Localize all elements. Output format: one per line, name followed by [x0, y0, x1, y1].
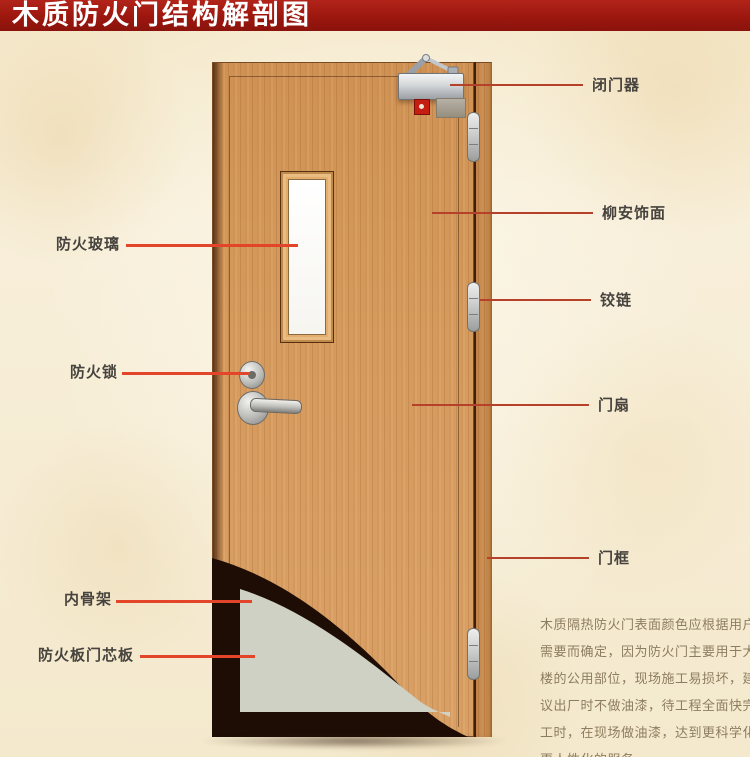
label-core-panel: 防火板门芯板	[18, 648, 134, 664]
door-cutaway	[212, 62, 476, 737]
description-line: 木质隔热防火门表面颜色应根据用户	[540, 611, 735, 638]
description-line: 更人性化的服务。	[540, 746, 735, 757]
description-line: 需要而确定，因为防火门主要用于大	[540, 638, 735, 665]
page-title: 木质防火门结构解剖图	[12, 0, 312, 31]
door-illustration	[212, 62, 492, 737]
label-door-closer: 闭门器	[592, 78, 640, 94]
leader-line-fire-glass	[126, 244, 298, 247]
leader-line-door-leaf	[412, 404, 589, 406]
door-floor-shadow	[202, 733, 507, 749]
leader-line-inner-skeleton	[116, 600, 252, 603]
page-title-banner: 木质防火门结构解剖图	[0, 0, 750, 31]
leader-line-lauan-veneer	[432, 212, 593, 214]
leader-line-fire-lock	[122, 372, 250, 375]
leader-line-core-panel	[140, 655, 255, 658]
label-fire-lock: 防火锁	[28, 365, 118, 381]
leader-line-door-closer	[450, 84, 583, 86]
label-door-leaf: 门扇	[598, 398, 630, 414]
label-inner-skeleton: 内骨架	[18, 592, 112, 608]
description-line: 楼的公用部位，现场施工易损坏，建	[540, 665, 735, 692]
description-text: 木质隔热防火门表面颜色应根据用户 需要而确定，因为防火门主要用于大 楼的公用部位…	[540, 611, 735, 757]
label-hinge: 铰链	[600, 293, 632, 309]
label-fire-glass: 防火玻璃	[28, 237, 120, 253]
label-lauan-veneer: 柳安饰面	[602, 206, 666, 222]
page-background: 木质防火门结构解剖图 防火玻璃 防	[0, 0, 750, 757]
core-panel-shape	[240, 589, 450, 717]
leader-line-door-frame	[487, 557, 589, 559]
leader-line-hinge	[480, 299, 591, 301]
description-line: 议出厂时不做油漆，待工程全面快完	[540, 692, 735, 719]
description-line: 工时，在现场做油漆，达到更科学化	[540, 719, 735, 746]
label-door-frame: 门框	[598, 551, 630, 567]
